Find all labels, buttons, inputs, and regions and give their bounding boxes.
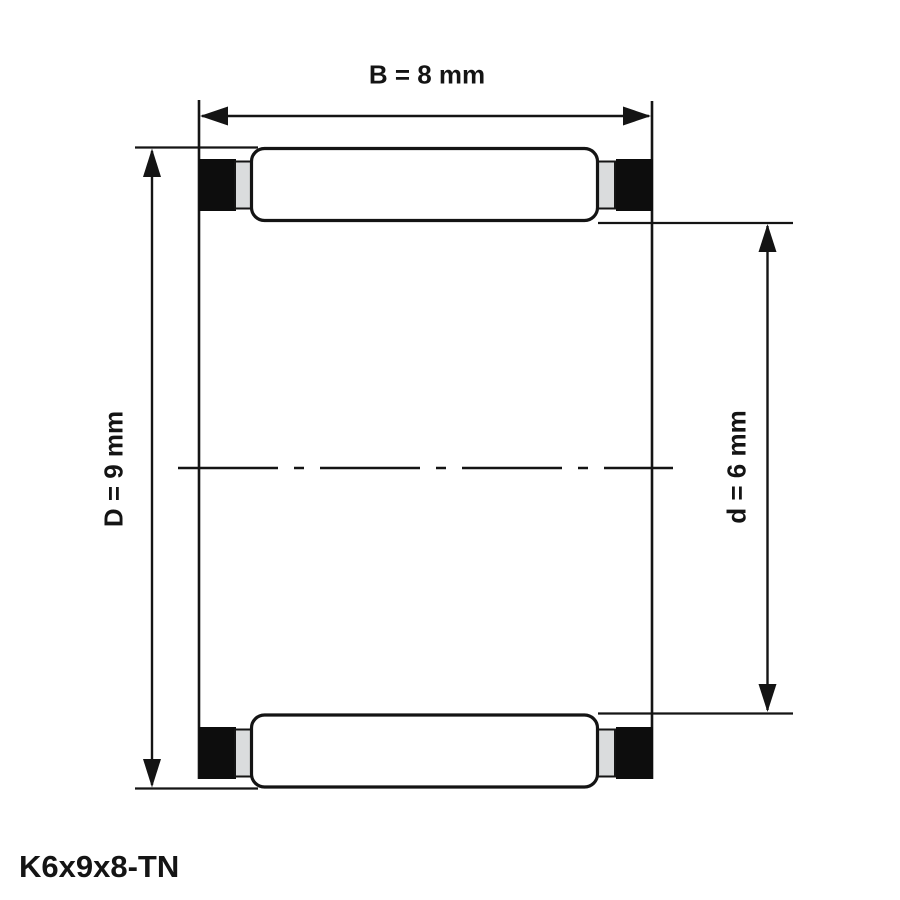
bearing-part-number: K6x9x8-TN [19,849,179,885]
inner-diameter-label: d = 6 mm [722,410,753,523]
width-b-arrowhead-right [623,107,651,126]
outer-diameter-label: D = 9 mm [99,411,130,527]
ring-strip-top-right [597,162,615,209]
inner-d-arrowhead-up [759,224,777,252]
needle-roller-bottom [252,715,598,787]
width-b-label: B = 8 mm [369,60,485,91]
drawing-linework [0,0,900,900]
inner-d-arrowhead-down [759,684,777,712]
needle-roller-top [252,149,598,221]
cage-block-top-right [616,159,653,211]
cage-block-bottom-left [199,727,236,779]
outer-d-arrowhead-down [143,759,161,788]
cage-block-bottom-right [616,727,653,779]
outer-d-arrowhead-up [143,149,161,178]
bearing-dimension-drawing: B = 8 mm D = 9 mm d = 6 mm K6x9x8-TN [0,0,900,900]
cage-block-top-left [199,159,236,211]
width-b-arrowhead-left [200,107,228,126]
ring-strip-bottom-right [597,730,615,777]
